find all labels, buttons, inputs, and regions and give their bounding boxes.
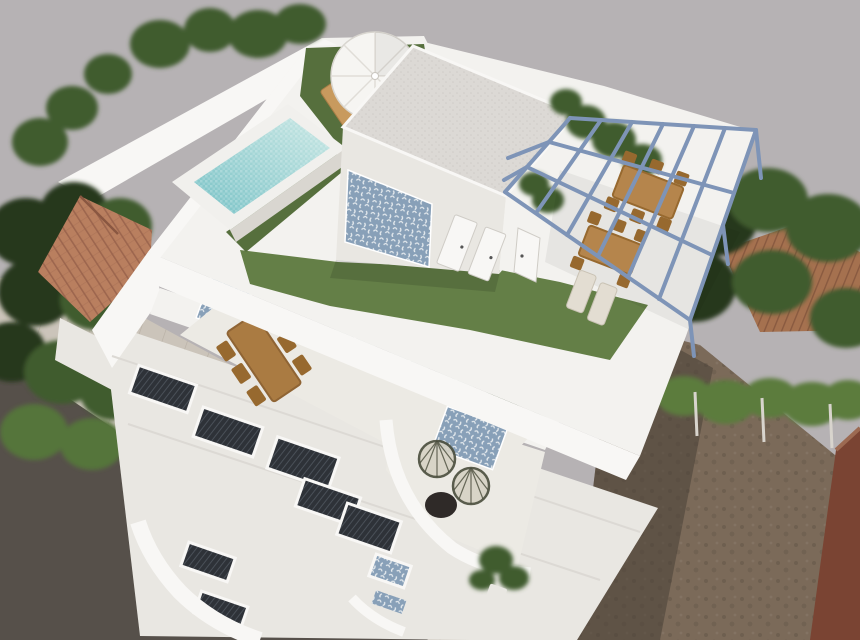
architectural-render (0, 0, 860, 640)
foliage-blob (550, 89, 582, 115)
foliage-blob (12, 118, 68, 166)
egg-chair-2 (453, 468, 489, 504)
foliage-blob (130, 20, 190, 68)
render-canvas (0, 0, 860, 640)
fence-post (830, 404, 832, 448)
fence-post (762, 398, 764, 442)
fence-post (695, 392, 697, 436)
foliage-blob (274, 4, 326, 44)
foliage-blob (0, 404, 68, 460)
umbrella-hub (372, 73, 379, 80)
foliage-blob (84, 54, 132, 94)
foliage-blob (499, 566, 529, 590)
foliage-blob (732, 250, 812, 314)
round-dark-table (425, 492, 457, 518)
door-handle (520, 254, 523, 257)
foliage-blob (184, 8, 236, 52)
foliage-blob (60, 418, 124, 470)
penthouse-side-door (514, 228, 540, 282)
egg-chair-1 (419, 441, 455, 477)
